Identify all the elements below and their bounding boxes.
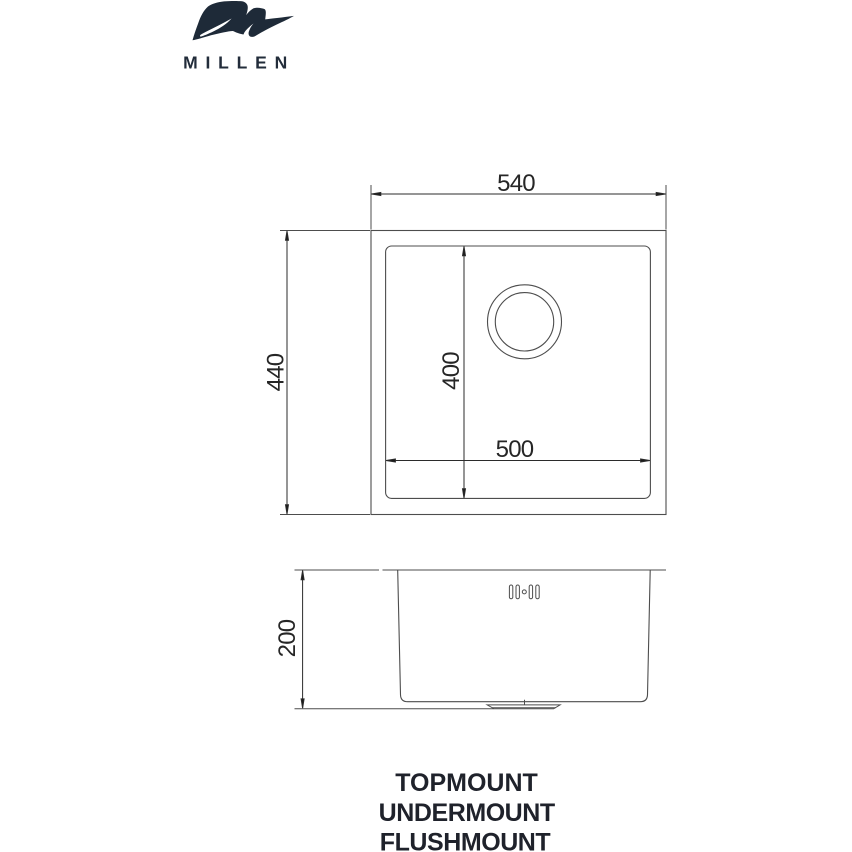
svg-text:500: 500: [496, 436, 534, 463]
svg-text:540: 540: [497, 170, 535, 197]
svg-text:400: 400: [438, 352, 465, 390]
svg-text:TOPMOUNT: TOPMOUNT: [395, 769, 538, 797]
svg-text:MILLEN: MILLEN: [183, 53, 295, 73]
svg-text:440: 440: [263, 353, 290, 391]
svg-text:FLUSHMOUNT: FLUSHMOUNT: [380, 828, 551, 852]
svg-text:UNDERMOUNT: UNDERMOUNT: [379, 799, 555, 827]
svg-text:200: 200: [274, 619, 301, 657]
